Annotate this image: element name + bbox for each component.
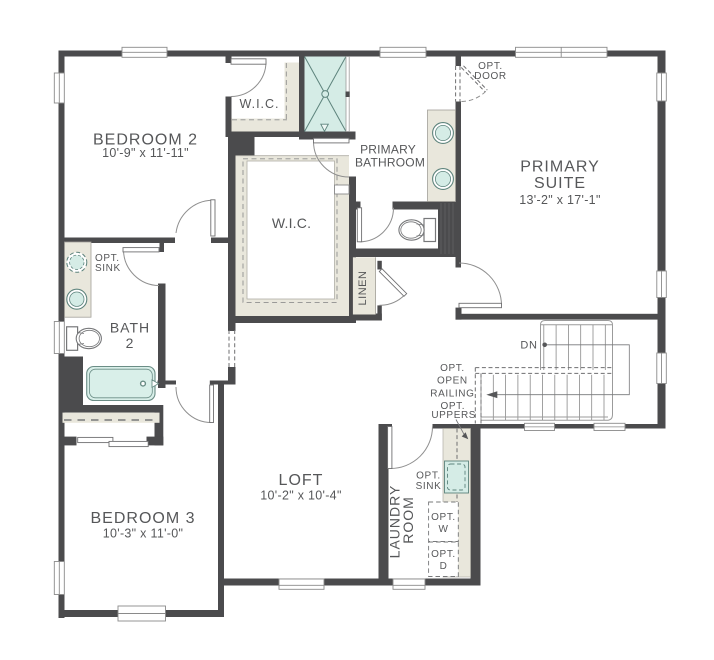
svg-text:ROOM: ROOM <box>400 496 416 544</box>
svg-text:DOOR: DOOR <box>474 71 506 82</box>
svg-text:SUITE: SUITE <box>534 175 586 192</box>
svg-text:W: W <box>438 524 448 535</box>
svg-text:SINK: SINK <box>95 263 121 274</box>
svg-text:10'-2" x 10'-4": 10'-2" x 10'-4" <box>260 489 341 503</box>
svg-text:W.I.C.: W.I.C. <box>239 97 279 111</box>
svg-text:UPPERS: UPPERS <box>431 410 476 421</box>
svg-text:LOFT: LOFT <box>279 472 324 489</box>
svg-text:D: D <box>440 561 448 572</box>
svg-text:RAILING: RAILING <box>430 388 474 399</box>
svg-text:BATH: BATH <box>110 320 150 336</box>
svg-text:OPT.: OPT. <box>431 549 456 560</box>
svg-text:10'-9" x 11'-11": 10'-9" x 11'-11" <box>102 146 189 160</box>
svg-text:W.I.C.: W.I.C. <box>272 215 311 231</box>
svg-text:OPEN: OPEN <box>437 376 468 387</box>
svg-text:SINK: SINK <box>416 481 442 492</box>
svg-text:OPT.: OPT. <box>416 471 441 482</box>
svg-text:OPT.: OPT. <box>440 363 465 374</box>
svg-text:13'-2" x 17'-1": 13'-2" x 17'-1" <box>519 193 600 207</box>
svg-text:2: 2 <box>126 335 135 351</box>
svg-text:BEDROOM 3: BEDROOM 3 <box>90 510 195 527</box>
svg-text:LINEN: LINEN <box>357 271 369 306</box>
svg-text:OPT.: OPT. <box>431 512 456 523</box>
svg-text:10'-3" x 11'-0": 10'-3" x 11'-0" <box>103 527 183 541</box>
svg-text:DN: DN <box>520 340 537 352</box>
svg-text:PRIMARY: PRIMARY <box>520 159 600 176</box>
svg-text:BATHROOM: BATHROOM <box>355 156 425 170</box>
svg-text:PRIMARY: PRIMARY <box>360 143 416 157</box>
